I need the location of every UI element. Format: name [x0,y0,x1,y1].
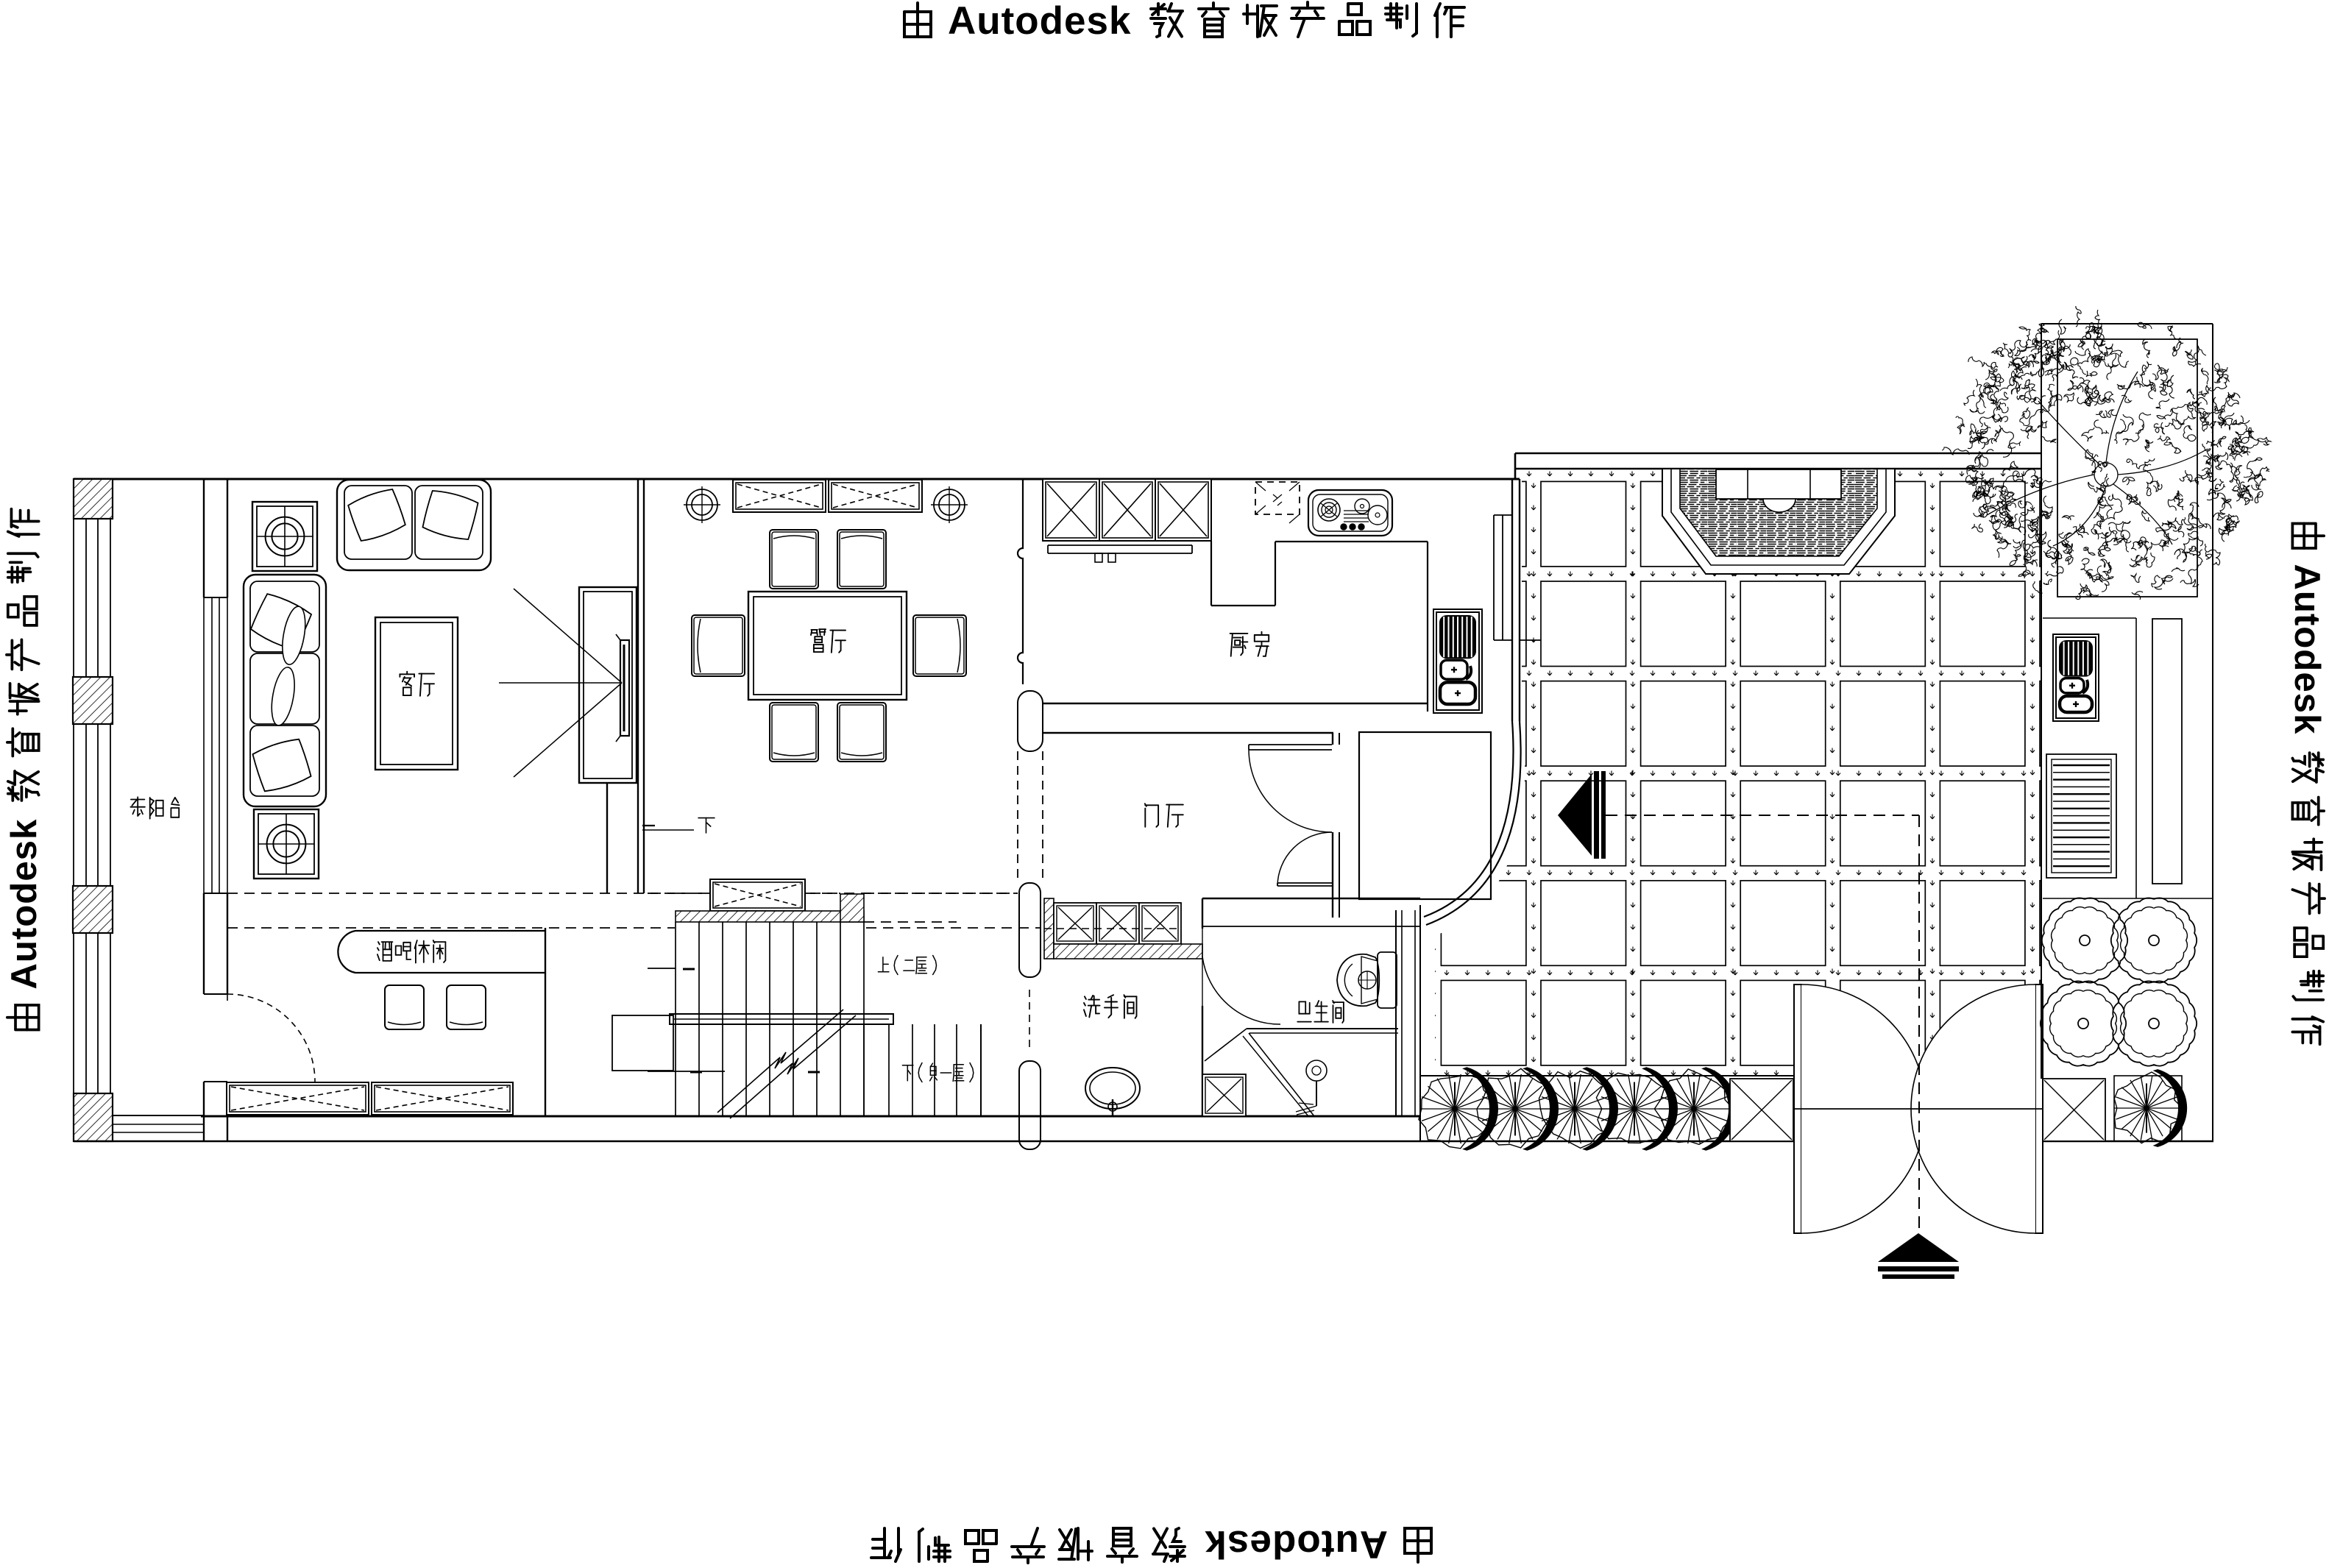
svg-text:Autodesk: Autodesk [4,819,44,990]
svg-text:Autodesk: Autodesk [948,0,1131,43]
svg-text:Autodesk: Autodesk [1205,1522,1388,1566]
svg-text:Autodesk: Autodesk [2287,564,2328,734]
